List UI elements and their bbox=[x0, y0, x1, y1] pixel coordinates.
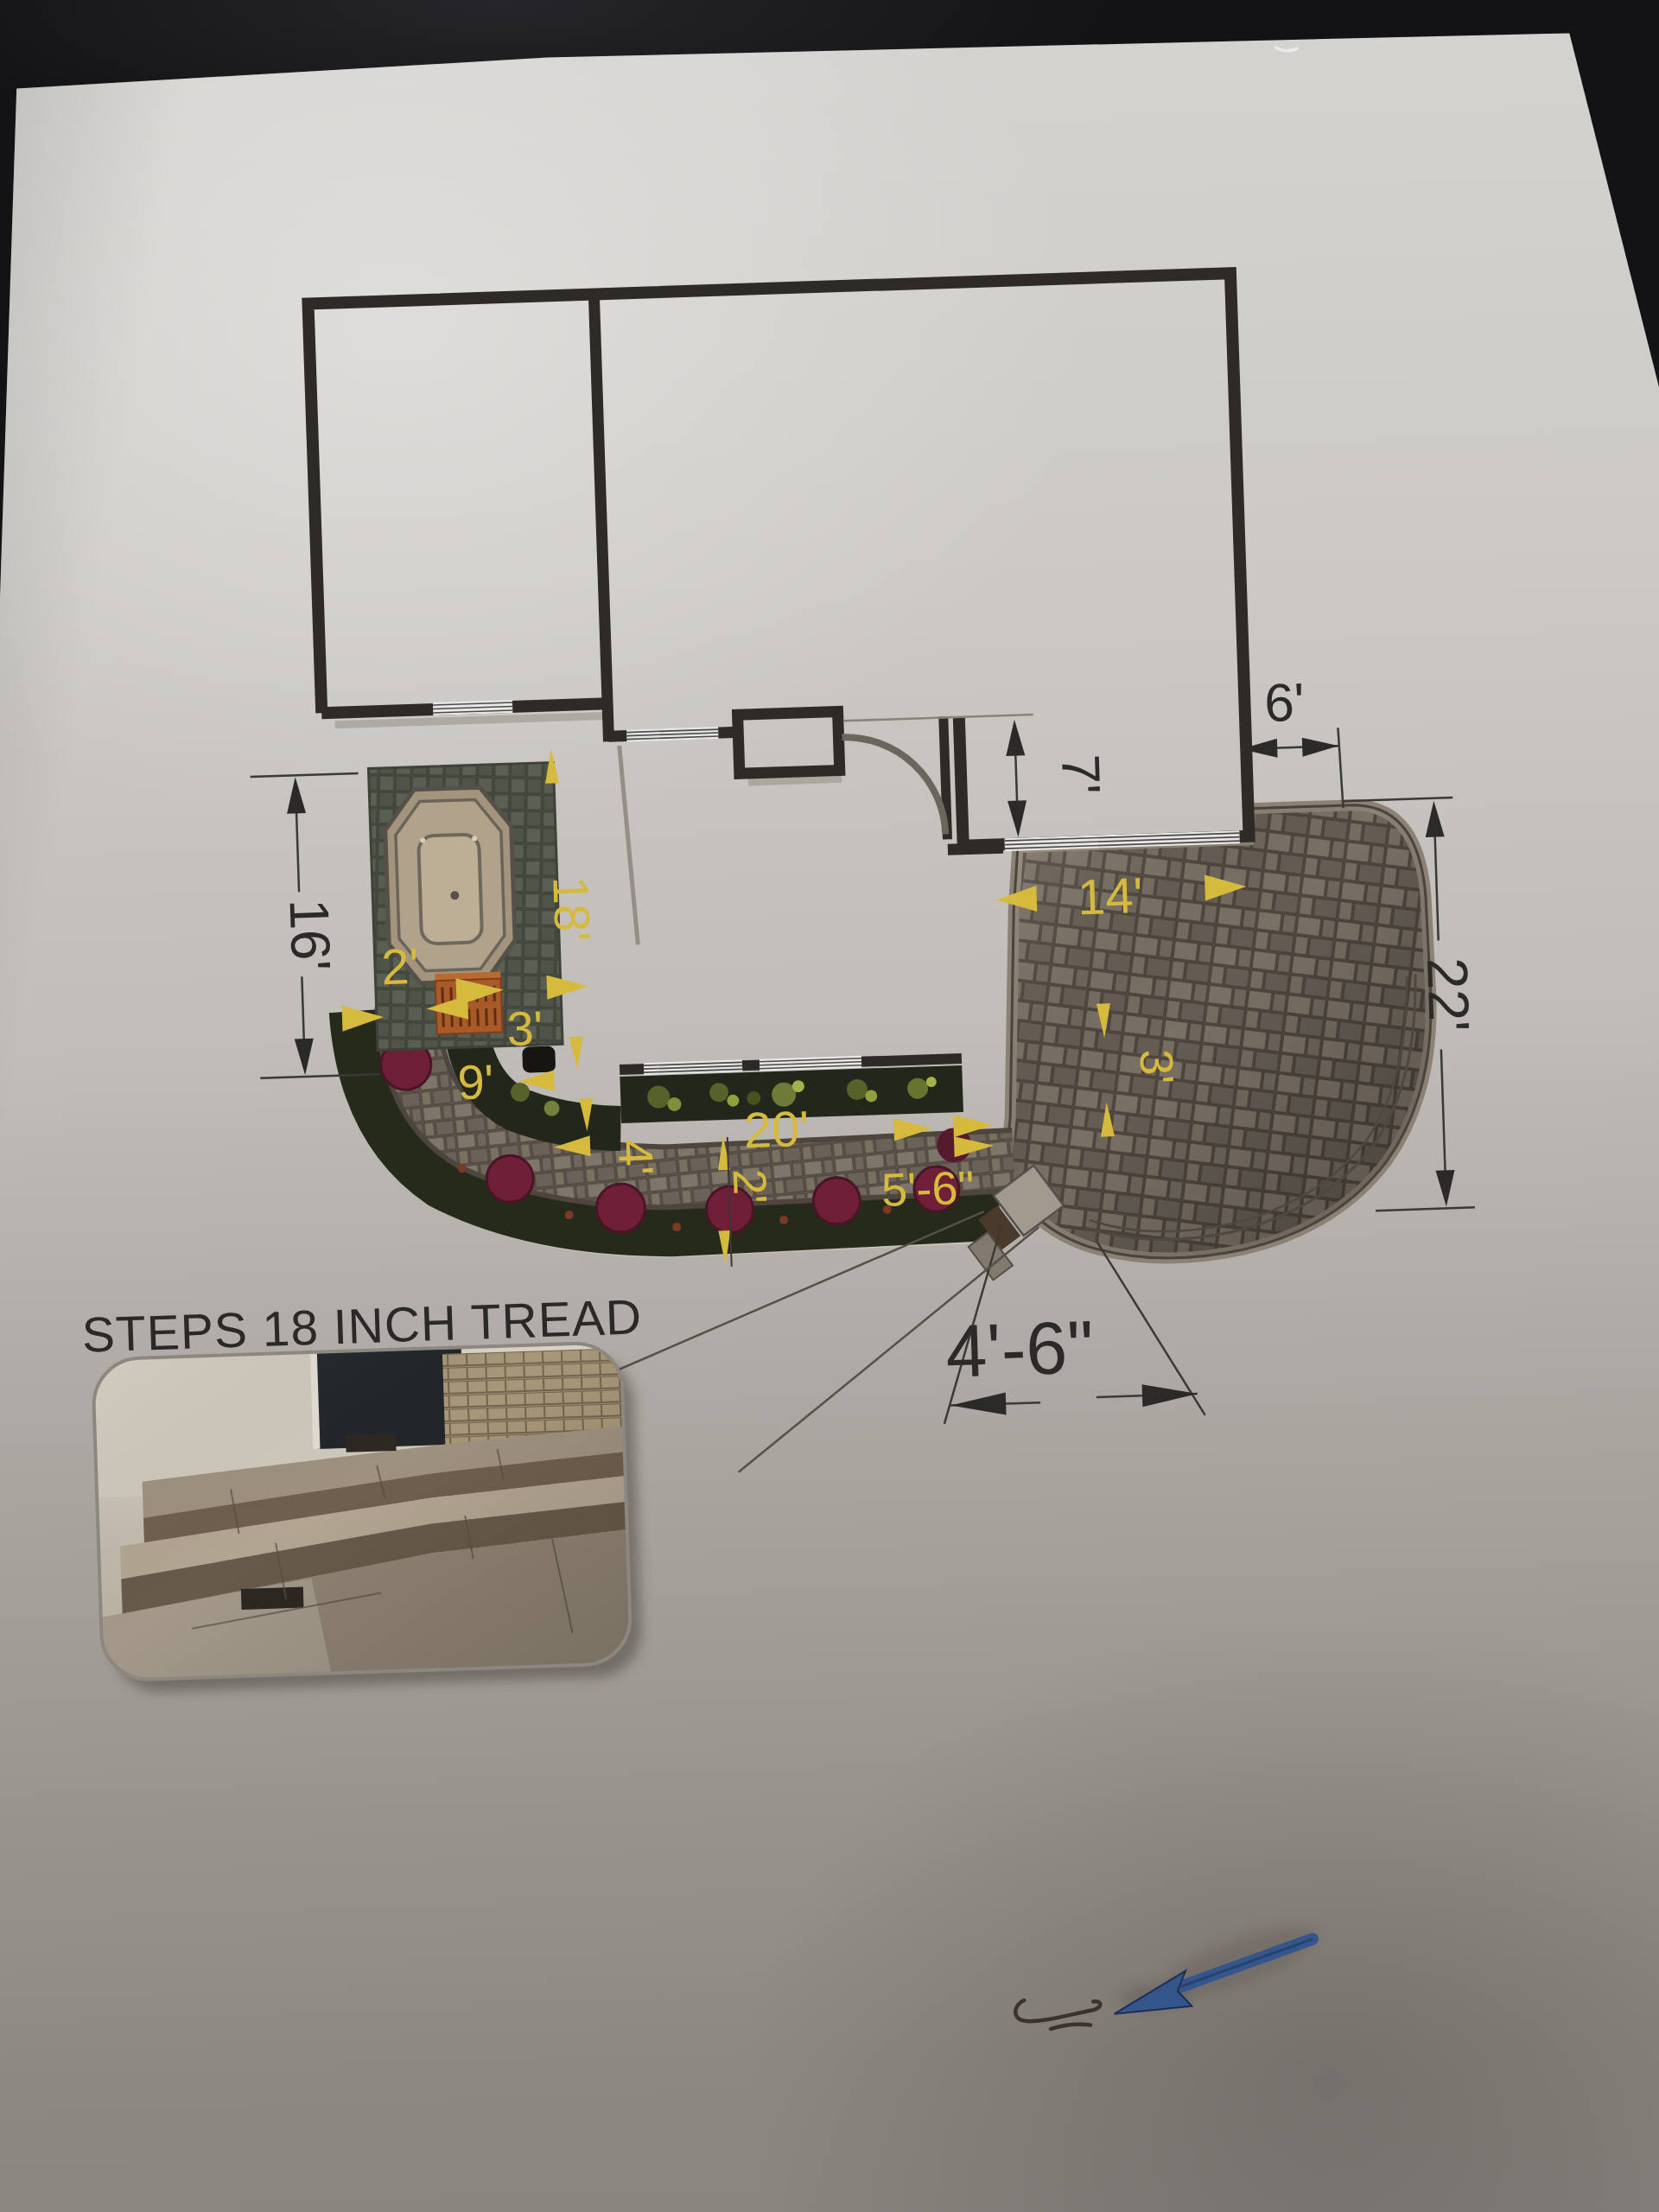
dim-arrow-icon bbox=[1424, 800, 1444, 837]
dim-arrow-icon bbox=[1005, 719, 1025, 756]
dim-arrow-icon bbox=[950, 1392, 1007, 1416]
dim-arrow-icon bbox=[295, 1039, 315, 1076]
porch-edge-line bbox=[620, 745, 639, 944]
bay-window bbox=[738, 711, 840, 773]
ylabel-14: 14' bbox=[1077, 867, 1144, 925]
paper-scratch bbox=[1274, 46, 1298, 51]
window bbox=[626, 727, 718, 742]
window bbox=[433, 700, 512, 715]
dim-arrow-icon bbox=[1142, 1382, 1198, 1407]
ylabel-4: 4' bbox=[608, 1139, 664, 1177]
dim-label-16: 16' bbox=[277, 898, 342, 972]
yellow-arrow-icon bbox=[546, 974, 588, 1000]
pen-squiggle bbox=[1015, 1998, 1101, 2030]
dim-label-6: 6' bbox=[1263, 672, 1306, 733]
patio bbox=[994, 803, 1440, 1263]
hot-tub-seat bbox=[418, 834, 482, 944]
ylabel-3-patio: 3' bbox=[1130, 1048, 1183, 1084]
ylabel-3-spa: 3' bbox=[506, 1001, 544, 1056]
dim-label-7: 7' bbox=[1051, 753, 1111, 796]
yellow-arrow-icon bbox=[569, 1036, 584, 1070]
window bbox=[644, 1059, 742, 1075]
dim-arrow-icon bbox=[286, 777, 306, 814]
shrub bbox=[486, 1154, 534, 1203]
patio-shade bbox=[994, 803, 1440, 1263]
dim-label-4-6: 4'-6" bbox=[944, 1305, 1095, 1393]
ylabel-18: 18' bbox=[543, 875, 601, 943]
shrub bbox=[812, 1177, 861, 1225]
shrub bbox=[596, 1183, 646, 1233]
door-swing-arc bbox=[842, 734, 946, 837]
plan-drawing: 16' 6' 7' bbox=[0, 0, 1659, 2212]
dim-arrow-icon bbox=[1007, 800, 1027, 837]
ylabel-5-6: 5'-6" bbox=[880, 1161, 975, 1217]
ylabel-9: 9' bbox=[457, 1054, 495, 1109]
dim-arrow-icon bbox=[1302, 736, 1339, 756]
dimension-6ft: 6' bbox=[1238, 671, 1343, 811]
dim-arrow-icon bbox=[1436, 1170, 1456, 1207]
steps-inset-photo bbox=[92, 1342, 643, 1694]
stub-wall bbox=[948, 848, 1003, 849]
dim-label-22: 22' bbox=[1415, 957, 1482, 1033]
ylabel-2-bed: 2' bbox=[724, 1168, 777, 1205]
window bbox=[760, 1056, 861, 1071]
dimension-7ft: 7' bbox=[1005, 716, 1113, 837]
interior-wall bbox=[594, 295, 608, 742]
wall-shadow bbox=[748, 779, 842, 782]
door-header-line bbox=[843, 715, 1033, 721]
ylabel-spa-gap: 2' bbox=[380, 938, 419, 995]
ylabel-20: 20' bbox=[743, 1100, 810, 1158]
